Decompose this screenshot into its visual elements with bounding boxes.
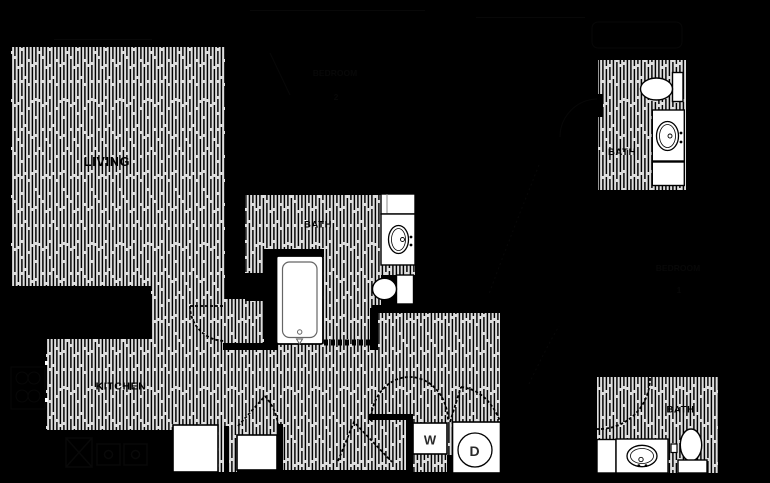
svg-text:BATH: BATH xyxy=(304,220,332,231)
svg-text:1: 1 xyxy=(677,285,682,295)
svg-text:2: 2 xyxy=(334,92,339,102)
svg-text:W: W xyxy=(424,433,437,448)
svg-text:BEDROOM: BEDROOM xyxy=(656,263,700,273)
svg-text:BATH: BATH xyxy=(608,147,636,158)
svg-text:LIVING: LIVING xyxy=(84,155,130,169)
svg-text:BATH: BATH xyxy=(666,405,694,416)
svg-text:BEDROOM: BEDROOM xyxy=(313,68,357,78)
svg-text:KITCHEN: KITCHEN xyxy=(96,381,147,393)
svg-text:D: D xyxy=(469,443,479,459)
